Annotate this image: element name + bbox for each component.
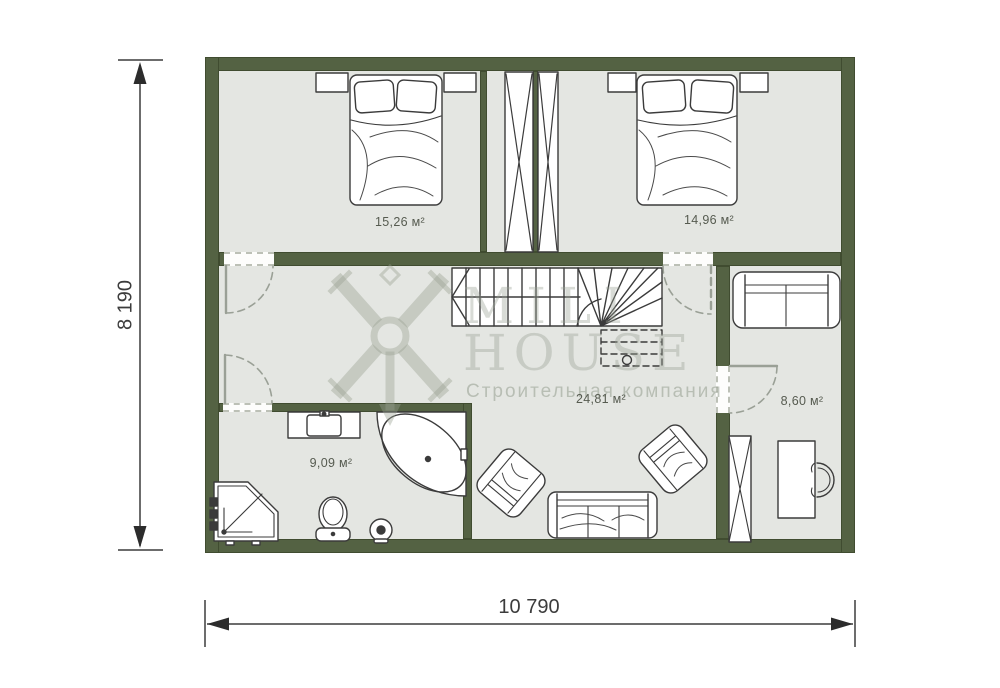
floor-plan-canvas: MILI HOUSE Строительная компания 15,26 м… [0,0,1000,688]
dimension-height-value: 8 190 [115,280,138,330]
dimension-width-value: 10 790 [498,596,559,619]
dimension-lines-layer [0,0,1000,688]
